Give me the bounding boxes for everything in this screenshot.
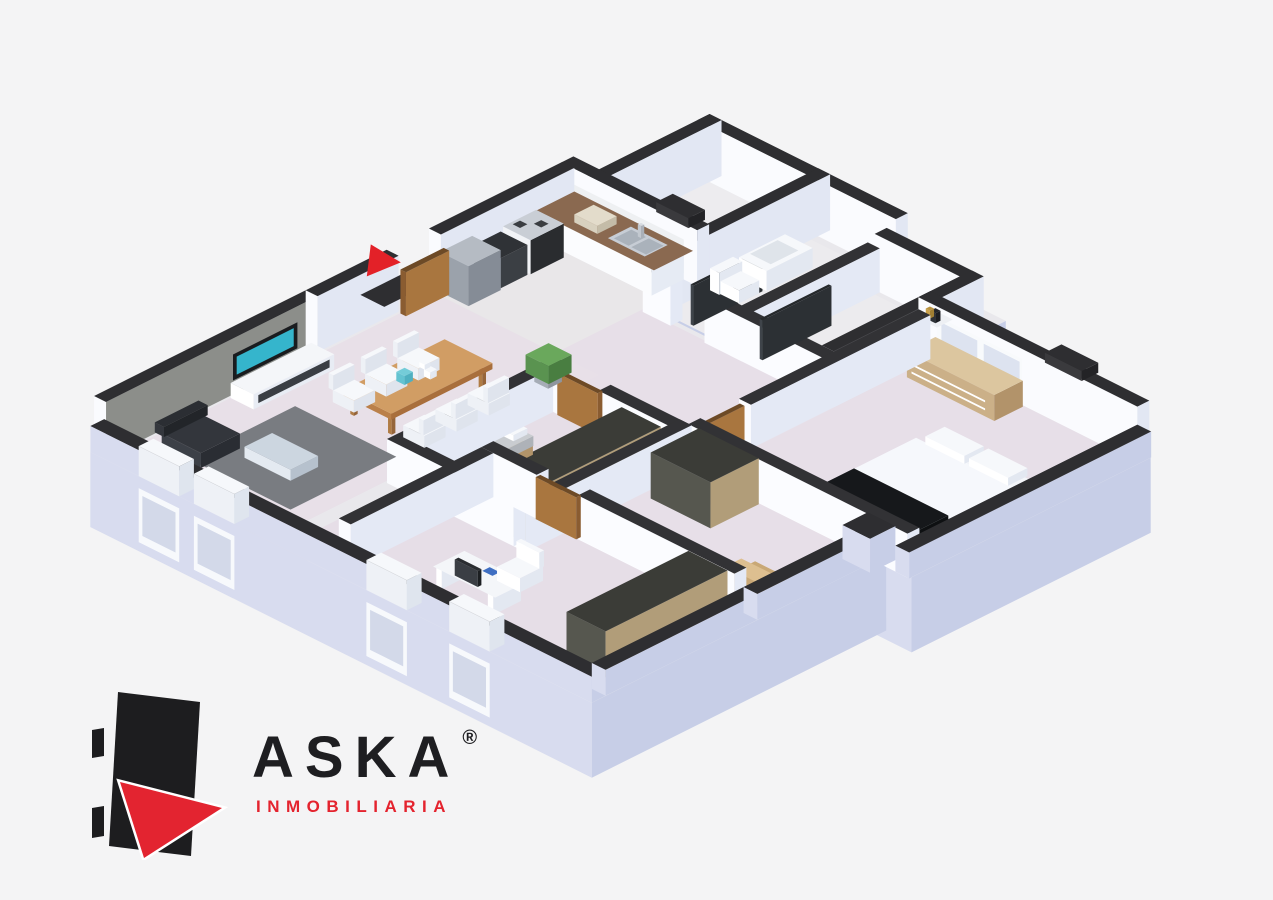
toilet-tank-left bbox=[710, 268, 719, 295]
entrance-door-left bbox=[400, 270, 406, 317]
dining-chair-3-back-left bbox=[393, 341, 398, 358]
dining-chair-1-back-left bbox=[329, 373, 334, 390]
office-chair-back-right bbox=[539, 550, 544, 568]
registered-mark: ® bbox=[462, 727, 477, 750]
shower-glass-1-left bbox=[691, 284, 694, 325]
dining-chair-5-back-left bbox=[451, 402, 456, 419]
office-door-right bbox=[576, 495, 581, 539]
kitchen-faucet-left bbox=[638, 225, 641, 239]
logo-text: ASKA ® INMOBILIARIA bbox=[252, 729, 477, 817]
logo-window-bar-2 bbox=[92, 806, 104, 838]
logo-mark bbox=[88, 686, 228, 860]
dining-chair-2-back-left bbox=[361, 357, 366, 374]
brand-name: ASKA bbox=[252, 729, 460, 787]
brand-row: ASKA ® bbox=[252, 729, 477, 787]
dining-chair-4-back-left bbox=[419, 418, 424, 435]
wall-west-mid-left bbox=[306, 290, 318, 352]
desk-monitor-right bbox=[478, 569, 482, 587]
logo-window-bar-1 bbox=[92, 728, 104, 758]
aska-logo: ASKA ® INMOBILIARIA bbox=[88, 686, 477, 860]
floorplan-page: ASKA ® INMOBILIARIA bbox=[0, 0, 1273, 900]
dining-chair-6-back-left bbox=[483, 386, 488, 403]
brand-tagline: INMOBILIARIA bbox=[256, 797, 477, 817]
kitchen-faucet-right bbox=[641, 225, 644, 239]
shower-glass-2-left bbox=[760, 319, 763, 360]
